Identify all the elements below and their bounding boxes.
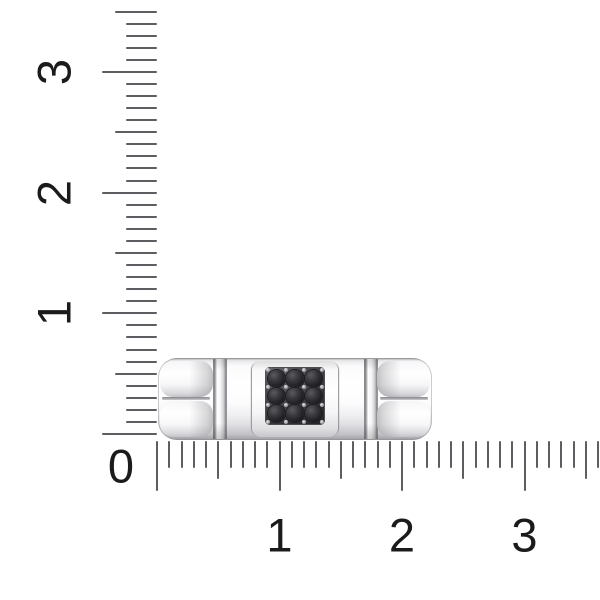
ruler-tick [524,441,526,491]
ruler-tick [511,441,513,468]
ruler-tick [126,59,157,61]
ruler-tick [426,441,428,468]
horizontal-ruler-number: 3 [511,512,537,559]
metal-pillow-top [377,361,430,397]
horizontal-groove [162,397,210,400]
ruler-tick [126,167,157,169]
horizontal-groove [380,397,428,400]
ruler-tick [126,107,157,109]
prong-dot [266,368,270,372]
ruler-tick [102,433,157,435]
ruler-tick [303,441,305,468]
ruler-tick [126,240,157,242]
ruler-tick [193,441,195,468]
ruler-tick [126,288,157,290]
ruler-tick [126,95,157,97]
metal-pillow-bottom [377,401,430,437]
prong-dot [302,403,306,407]
ruler-tick [536,441,538,468]
ruler-tick [462,441,464,479]
ruler-tick [126,300,157,302]
ruler-tick [377,441,379,468]
ruler-tick [266,441,268,468]
ruler-tick [126,349,157,351]
ruler-tick [126,385,157,387]
ruler-tick [126,409,157,411]
ruler-tick [352,441,354,468]
ruler-tick [126,276,157,278]
ruler-tick [475,441,477,468]
prong-dot [320,385,324,389]
ruler-tick [126,204,157,206]
prong-dot [266,385,270,389]
ruler-tick [115,373,157,375]
ruler-tick [102,71,157,73]
prong-dot [284,403,288,407]
black-stone-panel [265,367,325,425]
prong-dot [320,420,324,424]
ruler-tick [242,441,244,468]
ruler-tick [597,441,599,468]
ruler-tick [181,441,183,468]
product-image-stage: 321 123 0 [0,0,600,600]
vertical-ruler-number: 2 [31,180,78,206]
ruler-tick [230,441,232,468]
ruler-tick [126,23,157,25]
ring-ridge-left [213,359,227,439]
ruler-tick [126,216,157,218]
metal-pillow-top [160,361,213,397]
vertical-ruler-number: 3 [31,59,78,85]
ruler-tick [126,228,157,230]
ruler-tick [413,441,415,468]
prong-dot [302,385,306,389]
ruler-tick [560,441,562,468]
horizontal-ruler-number: 1 [266,512,292,559]
ruler-tick [438,441,440,468]
prong-dots-layer [265,367,325,425]
prong-dot [284,420,288,424]
ring-band [158,358,432,440]
ruler-tick [499,441,501,468]
ruler-tick [102,192,157,194]
ruler-tick [126,421,157,423]
ruler-tick [156,441,158,491]
ruler-tick [126,361,157,363]
prong-dot [284,368,288,372]
ruler-tick [573,441,575,468]
ring-left-end-cap [159,359,214,439]
ruler-tick [102,312,157,314]
ruler-tick [126,155,157,157]
prong-dot [284,385,288,389]
metal-pillow-bottom [160,401,213,437]
ruler-tick [126,83,157,85]
prong-dot [302,368,306,372]
ruler-tick [126,180,157,182]
ruler-tick [126,143,157,145]
ruler-tick [548,441,550,468]
ruler-tick [389,441,391,468]
ruler-tick [340,441,342,479]
ring-right-end-cap [376,359,431,439]
ruler-tick [115,131,157,133]
ruler-tick [168,441,170,468]
ring-center-plate [252,361,338,437]
ruler-tick [487,441,489,468]
ruler-tick [328,441,330,468]
ruler-tick [126,324,157,326]
ruler-tick [126,264,157,266]
vertical-ruler-number: 1 [31,300,78,326]
ruler-tick [254,441,256,468]
prong-dot [320,403,324,407]
ruler-tick [126,397,157,399]
ruler-tick [115,11,157,13]
ruler-tick [279,441,281,491]
ruler-tick [364,441,366,468]
ruler-tick [126,336,157,338]
ruler-origin-label: 0 [108,443,134,490]
prong-dot [320,368,324,372]
prong-dot [266,403,270,407]
ruler-tick [401,441,403,491]
ruler-tick [205,441,207,468]
ruler-tick [126,35,157,37]
ruler-tick [585,441,587,479]
horizontal-ruler-number: 2 [389,512,415,559]
prong-dot [302,420,306,424]
ruler-tick [291,441,293,468]
ruler-tick [126,119,157,121]
ruler-tick [315,441,317,468]
ruler-tick [115,252,157,254]
ruler-tick [126,47,157,49]
ruler-tick [217,441,219,479]
prong-dot [266,420,270,424]
ruler-tick [450,441,452,468]
